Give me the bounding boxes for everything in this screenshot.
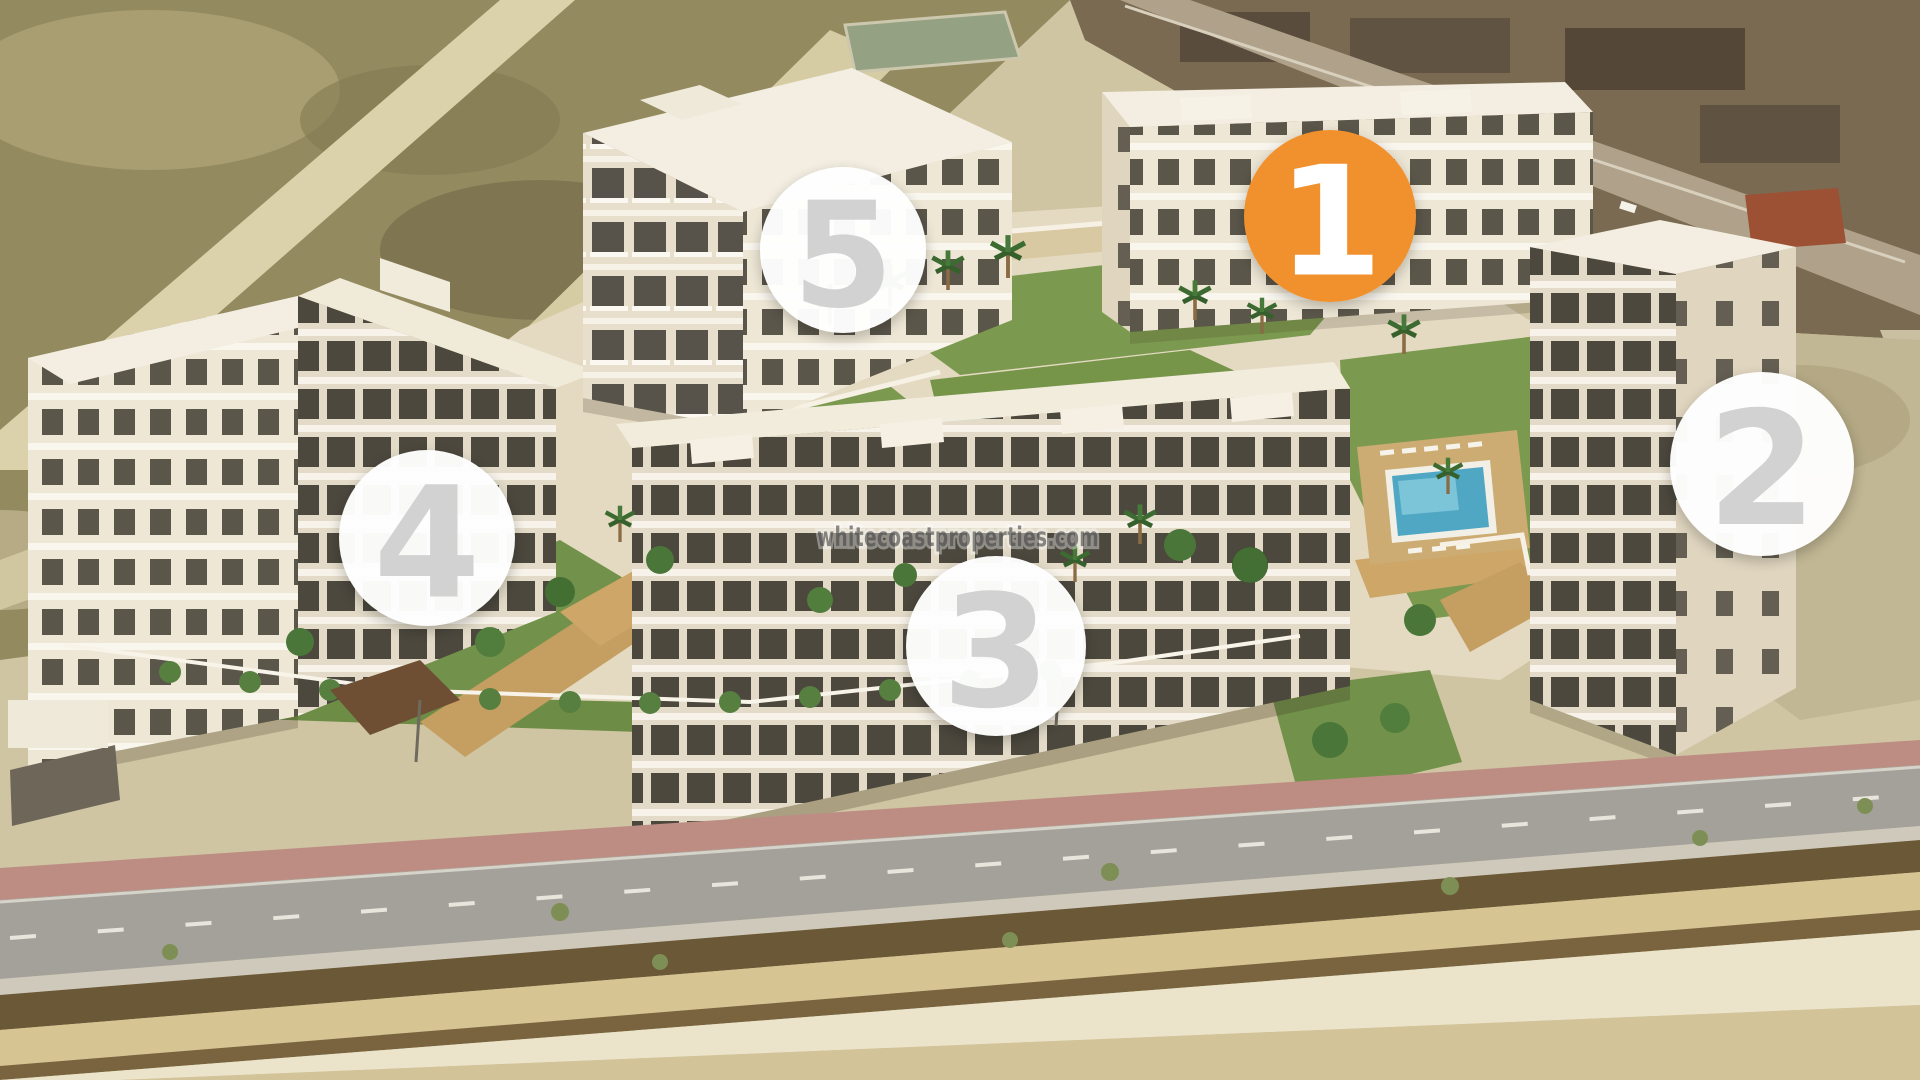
development-aerial-view: whitecoastproperties.com whitecoastprope… xyxy=(0,0,1920,1080)
watermark: whitecoastproperties.com whitecoastprope… xyxy=(817,522,1099,553)
badge-number: 5 xyxy=(792,171,894,341)
badge-number: 4 xyxy=(373,455,480,634)
utility-boxes xyxy=(8,700,108,748)
aerial-render: whitecoastproperties.com whitecoastprope… xyxy=(0,0,1920,1080)
svg-text:whitecoastproperties.com: whitecoastproperties.com xyxy=(817,522,1099,553)
badge-number: 2 xyxy=(1707,378,1817,562)
badge-number: 1 xyxy=(1277,134,1383,311)
badge-number: 3 xyxy=(942,561,1051,743)
